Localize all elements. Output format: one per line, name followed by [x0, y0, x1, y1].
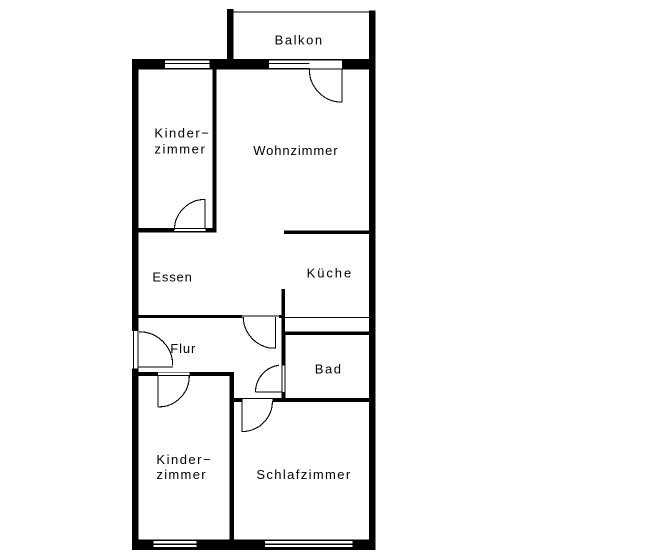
svg-text:Schlafzimmer: Schlafzimmer	[256, 467, 350, 482]
svg-text:zimmer: zimmer	[156, 467, 206, 482]
svg-text:Bad: Bad	[315, 361, 341, 376]
svg-text:Flur: Flur	[170, 341, 196, 356]
svg-text:Balkon: Balkon	[275, 32, 323, 47]
svg-text:Küche: Küche	[307, 265, 352, 280]
svg-text:zimmer: zimmer	[154, 141, 205, 156]
svg-text:Kinder−: Kinder−	[156, 452, 210, 467]
svg-text:Kinder−: Kinder−	[154, 125, 208, 140]
svg-text:Wohnzimmer: Wohnzimmer	[253, 143, 338, 158]
svg-text:Essen: Essen	[152, 269, 191, 284]
